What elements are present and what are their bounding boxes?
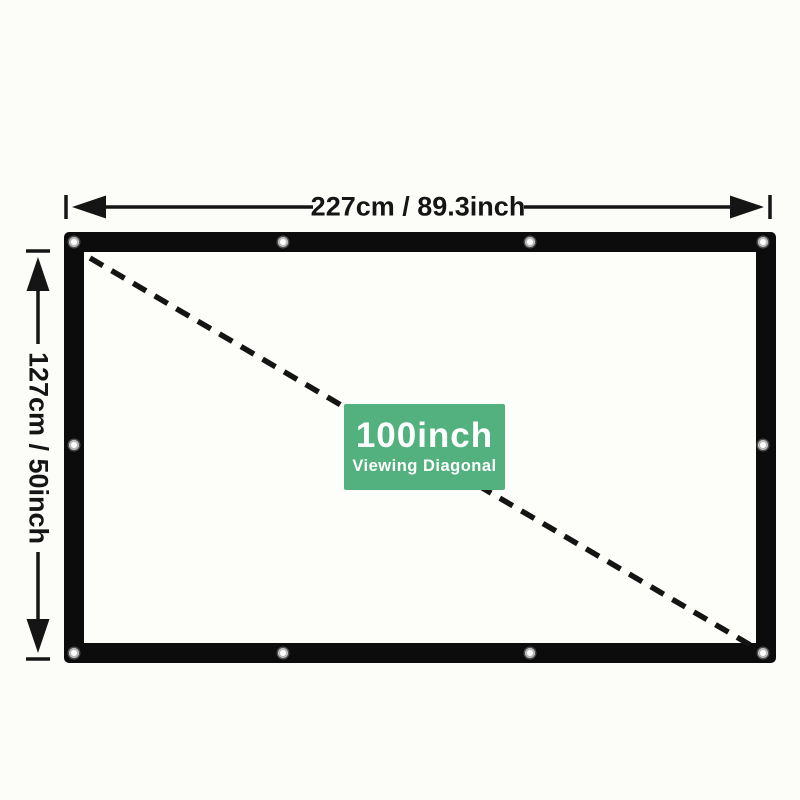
grommet-eyelet	[525, 648, 535, 658]
grommet-eyelet	[278, 648, 288, 658]
grommet-eyelet	[758, 237, 768, 247]
grommet-eyelet	[758, 440, 768, 450]
badge-caption-label: Viewing Diagonal	[352, 457, 496, 476]
width-dimension-label: 227cm / 89.3inch	[311, 192, 526, 223]
grommet-eyelet	[278, 237, 288, 247]
product-dimension-diagram: 100inch Viewing Diagonal 227cm / 89.3inc…	[0, 0, 800, 800]
grommet-eyelet	[69, 237, 79, 247]
width-right-arrowhead-icon	[730, 196, 764, 219]
grommet-eyelet	[525, 237, 535, 247]
grommet-eyelet	[69, 648, 79, 658]
grommet-eyelet	[69, 440, 79, 450]
height-down-arrowhead-icon	[27, 619, 50, 653]
height-dimension-label: 127cm / 50inch	[23, 352, 54, 544]
width-left-arrowhead-icon	[72, 196, 106, 219]
height-up-arrowhead-icon	[27, 257, 50, 291]
grommet-eyelet	[758, 648, 768, 658]
badge-size-label: 100inch	[356, 418, 493, 455]
viewing-diagonal-badge: 100inch Viewing Diagonal	[344, 404, 505, 490]
